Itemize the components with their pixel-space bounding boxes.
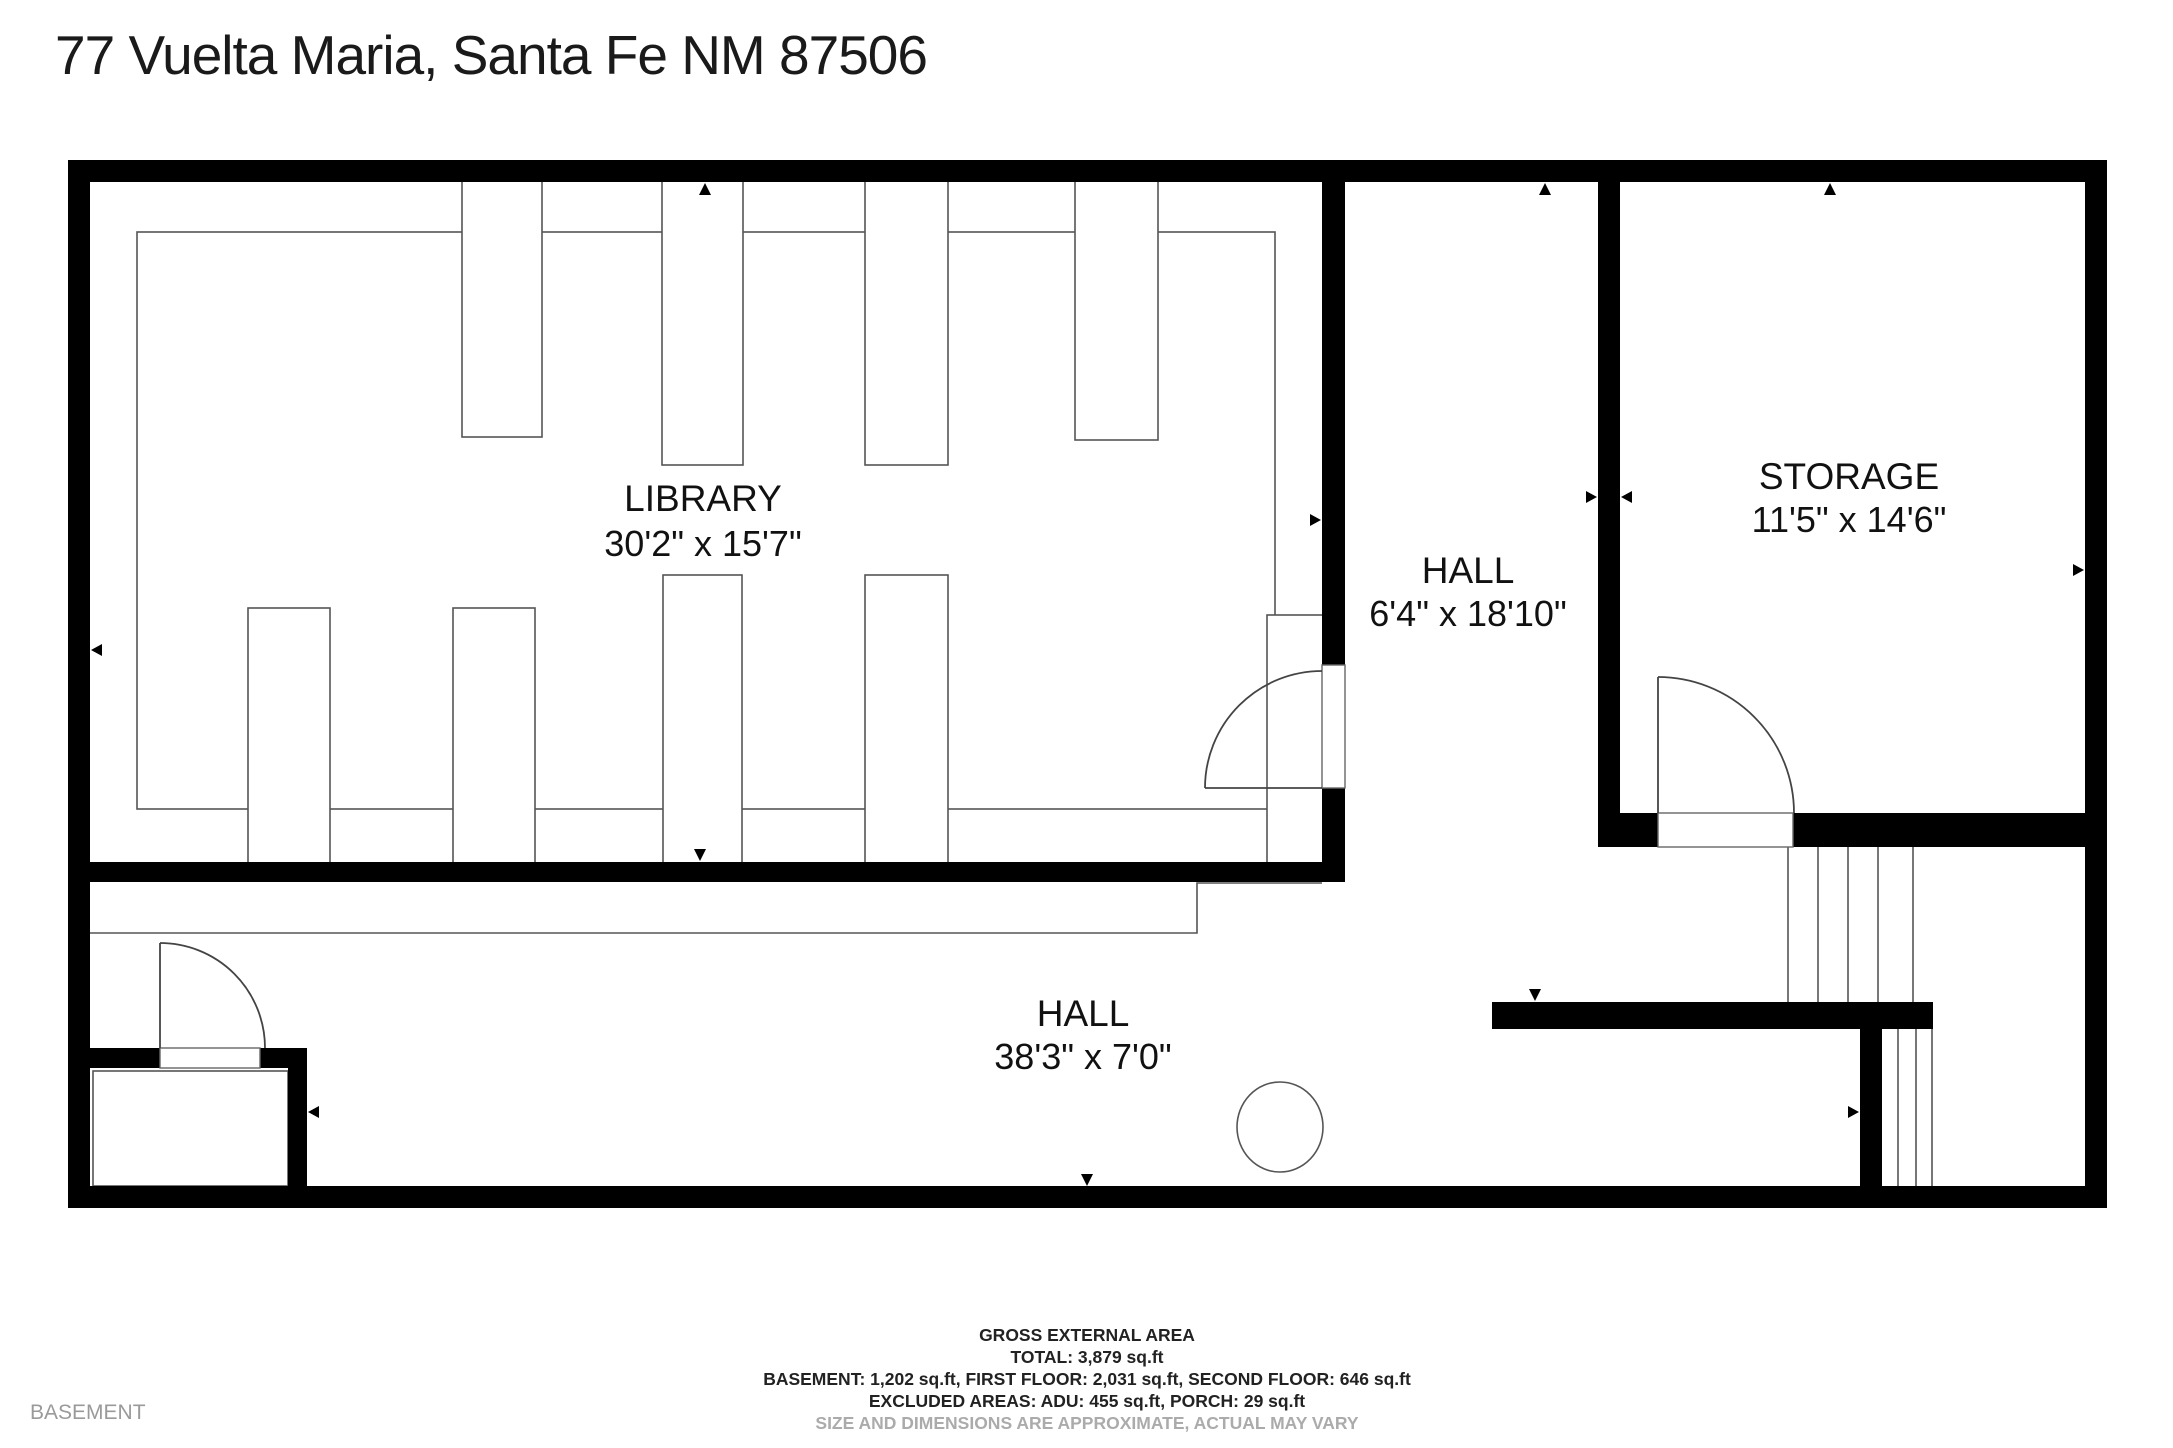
wall-small-room-right [288, 1048, 307, 1188]
door-opening-library [1322, 665, 1345, 788]
wall-storage-bottom-left [1598, 813, 1658, 847]
room-dims-hall-upper: 6'4" x 18'10" [1369, 593, 1566, 634]
summary-excluded: EXCLUDED AREAS: ADU: 455 sq.ft, PORCH: 2… [869, 1391, 1305, 1411]
wall-storage-left [1598, 182, 1620, 813]
column-circle [1237, 1082, 1323, 1172]
wall-library-hall-lower [1322, 788, 1345, 882]
floor-plan-page: 77 Vuelta Maria, Santa Fe NM 87506 [0, 0, 2173, 1448]
door-opening-storage [1658, 813, 1793, 847]
wall-exterior-bottom [68, 1186, 2107, 1208]
floor-plan-svg: 77 Vuelta Maria, Santa Fe NM 87506 [0, 0, 2173, 1448]
bookshelf [462, 181, 542, 437]
door-opening-small-room [160, 1048, 260, 1068]
page-title: 77 Vuelta Maria, Santa Fe NM 87506 [55, 24, 927, 86]
room-dims-hall-lower: 38'3" x 7'0" [994, 1036, 1171, 1077]
summary-total: TOTAL: 3,879 sq.ft [1011, 1347, 1164, 1367]
wall-small-room-top-left [68, 1048, 160, 1068]
room-label-hall-lower: HALL [1037, 993, 1130, 1034]
summary-heading: GROSS EXTERNAL AREA [979, 1325, 1195, 1345]
bookshelf [663, 575, 742, 863]
bookshelf [662, 181, 743, 465]
room-label-storage: STORAGE [1759, 456, 1939, 497]
bookshelf [865, 575, 948, 863]
floor-label: BASEMENT [30, 1401, 146, 1424]
wall-exterior-top [68, 160, 2107, 182]
bookshelf [1267, 615, 1323, 863]
wall-exterior-right [2085, 160, 2107, 1208]
bookshelf [865, 181, 948, 465]
room-dims-storage: 11'5" x 14'6" [1752, 499, 1947, 540]
wall-stair-side [1860, 1029, 1882, 1188]
wall-library-bottom [68, 862, 1345, 882]
bookshelf [453, 608, 535, 863]
room-dims-library: 30'2" x 15'7" [604, 523, 801, 564]
summary-floors: BASEMENT: 1,202 sq.ft, FIRST FLOOR: 2,03… [763, 1369, 1411, 1389]
room-label-hall-upper: HALL [1422, 550, 1515, 591]
wall-storage-bottom-right [1793, 813, 2085, 847]
wall-stair-landing [1492, 1002, 1933, 1029]
bookshelf [1075, 181, 1158, 440]
summary-disclaimer: SIZE AND DIMENSIONS ARE APPROXIMATE, ACT… [815, 1413, 1359, 1433]
room-label-library: LIBRARY [624, 478, 782, 519]
wall-library-hall-upper [1322, 182, 1345, 665]
bookshelf [248, 608, 330, 863]
